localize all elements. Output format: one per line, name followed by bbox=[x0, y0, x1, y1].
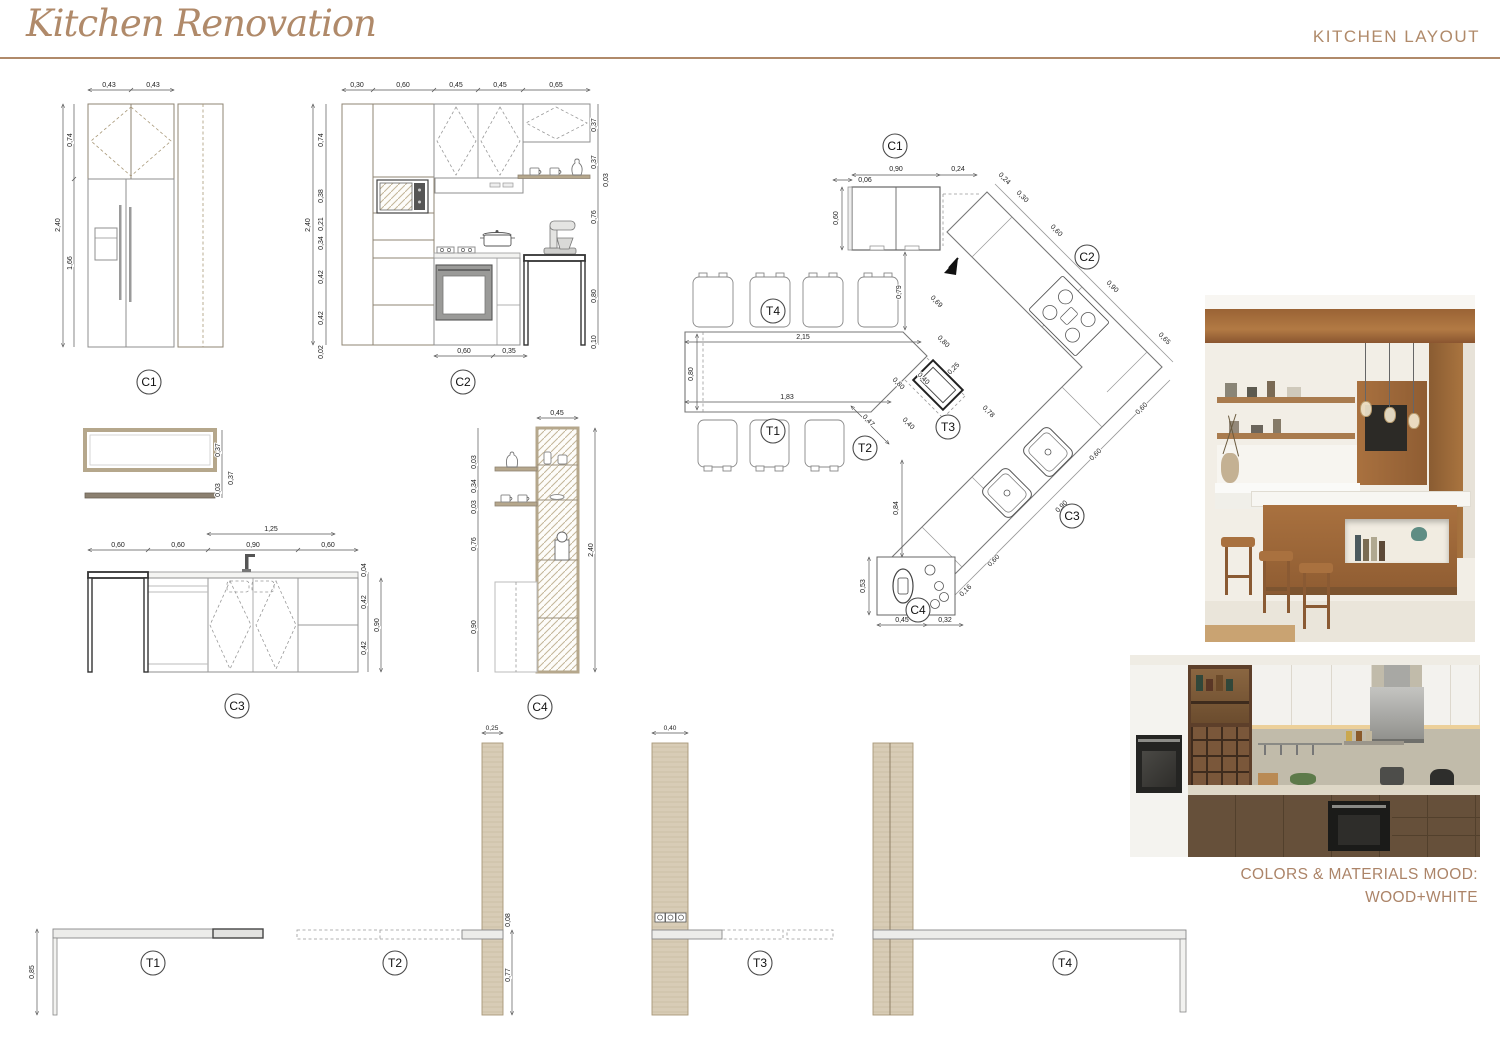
photo2-drawer-line bbox=[1392, 835, 1480, 836]
photo1-shelf-item bbox=[1287, 387, 1301, 397]
c2-microwave bbox=[377, 180, 428, 213]
photo1-stool-leg bbox=[1303, 573, 1306, 629]
svg-text:0,16: 0,16 bbox=[959, 584, 974, 599]
photo1-stool-leg bbox=[1263, 561, 1266, 613]
svg-text:0,90: 0,90 bbox=[471, 620, 478, 634]
t3-tag: T3 bbox=[748, 951, 772, 975]
svg-text:2,40: 2,40 bbox=[305, 218, 312, 232]
photo1-book bbox=[1379, 541, 1385, 561]
c1-fridge bbox=[88, 179, 174, 347]
svg-text:0,53: 0,53 bbox=[860, 579, 867, 593]
t1-dimensions: 0,85 bbox=[29, 929, 37, 1015]
svg-text:0,42: 0,42 bbox=[318, 270, 325, 284]
elevation-t2: 0,25 0,08 0,77 T2 bbox=[290, 720, 520, 1020]
svg-text:0,60: 0,60 bbox=[987, 554, 1002, 569]
t1-tag: T1 bbox=[141, 951, 165, 975]
photo1-book bbox=[1371, 537, 1377, 561]
svg-text:0,90: 0,90 bbox=[889, 166, 903, 173]
svg-text:0,08: 0,08 bbox=[505, 913, 512, 927]
photo2-bottle bbox=[1196, 675, 1203, 691]
svg-text:0,90: 0,90 bbox=[1105, 280, 1120, 295]
svg-text:0,90: 0,90 bbox=[374, 618, 381, 632]
svg-text:1,25: 1,25 bbox=[264, 526, 278, 533]
photo2-ceiling bbox=[1130, 655, 1480, 665]
photo1-wood-beam bbox=[1205, 309, 1475, 343]
plan-entry-arrow bbox=[944, 258, 958, 275]
svg-text:0,85: 0,85 bbox=[29, 965, 36, 979]
svg-text:0,25: 0,25 bbox=[486, 725, 499, 732]
svg-text:C1: C1 bbox=[887, 139, 903, 153]
svg-text:0,90: 0,90 bbox=[246, 542, 260, 549]
photo1-shelf-item bbox=[1251, 425, 1263, 433]
kitchen-photo-island bbox=[1205, 295, 1475, 642]
c4-lower-cabinet bbox=[495, 582, 537, 672]
photo1-pendant-lamp bbox=[1408, 413, 1420, 429]
svg-text:0,24: 0,24 bbox=[997, 172, 1012, 187]
svg-text:0,04: 0,04 bbox=[361, 563, 368, 577]
c2-tag: C2 bbox=[451, 370, 475, 394]
logo-script: Kitchen Renovation bbox=[26, 2, 376, 45]
c2-shelf-with-items bbox=[518, 159, 590, 179]
svg-text:2,40: 2,40 bbox=[588, 543, 595, 557]
svg-text:0,32: 0,32 bbox=[938, 617, 952, 624]
photo1-pendant-wire bbox=[1365, 343, 1366, 401]
c2-stand-mixer bbox=[544, 221, 576, 254]
photo1-stool-seat bbox=[1299, 563, 1333, 573]
svg-text:0,45: 0,45 bbox=[493, 82, 507, 89]
c3-counter-faucet bbox=[143, 554, 358, 578]
svg-text:0,37: 0,37 bbox=[591, 118, 598, 132]
photo1-right-wall bbox=[1463, 343, 1475, 558]
svg-text:0,03: 0,03 bbox=[471, 500, 478, 514]
photo1-island-plinth bbox=[1263, 587, 1457, 595]
svg-text:0,84: 0,84 bbox=[893, 501, 900, 515]
t3-dimensions: 0,40 bbox=[652, 725, 688, 733]
svg-text:0,60: 0,60 bbox=[321, 542, 335, 549]
c1-tag: C1 bbox=[137, 370, 161, 394]
photo1-pendant-wire bbox=[1413, 343, 1414, 413]
photo1-shelf bbox=[1217, 397, 1355, 403]
svg-text:2,15: 2,15 bbox=[796, 334, 810, 341]
svg-text:T2: T2 bbox=[388, 956, 402, 970]
svg-text:0,34: 0,34 bbox=[471, 479, 478, 493]
svg-text:0,37: 0,37 bbox=[228, 471, 235, 485]
svg-text:0,34: 0,34 bbox=[318, 236, 325, 250]
photo2-bottle bbox=[1216, 675, 1223, 691]
t2-tag: T2 bbox=[383, 951, 407, 975]
c3-wall-detail: 0,37 0,37 0,03 bbox=[85, 430, 235, 498]
c3-tag: C3 bbox=[225, 694, 249, 718]
photo2-drawer-line bbox=[1392, 817, 1480, 818]
c3-base-cabinets bbox=[148, 578, 358, 672]
photo1-stool-bar bbox=[1225, 575, 1252, 578]
c4-glass-cabinet bbox=[537, 428, 578, 672]
photo1-pendant-lamp bbox=[1384, 407, 1396, 423]
photo2-greens bbox=[1290, 773, 1316, 785]
photo2-spice-shelf bbox=[1344, 741, 1404, 745]
svg-text:C2: C2 bbox=[455, 375, 471, 389]
svg-text:0,60: 0,60 bbox=[1049, 224, 1064, 239]
photo2-black-oven-window bbox=[1338, 815, 1380, 845]
t4-tag: T4 bbox=[1053, 951, 1077, 975]
photo1-shelf-item bbox=[1225, 383, 1237, 397]
svg-text:0,60: 0,60 bbox=[457, 348, 471, 355]
photo2-utensil bbox=[1264, 745, 1266, 755]
svg-text:0,65: 0,65 bbox=[1157, 332, 1172, 347]
svg-text:0,45: 0,45 bbox=[550, 410, 564, 417]
svg-text:0,76: 0,76 bbox=[591, 210, 598, 224]
svg-text:T4: T4 bbox=[1058, 956, 1072, 970]
svg-text:0,21: 0,21 bbox=[318, 217, 325, 231]
svg-text:T2: T2 bbox=[858, 441, 872, 455]
svg-text:C3: C3 bbox=[229, 699, 245, 713]
svg-text:0,79: 0,79 bbox=[896, 285, 903, 299]
svg-text:C4: C4 bbox=[532, 700, 548, 714]
photo2-bottle bbox=[1226, 679, 1233, 691]
svg-text:0,74: 0,74 bbox=[67, 133, 74, 147]
t3-column-table bbox=[652, 743, 833, 1015]
svg-text:0,30: 0,30 bbox=[350, 82, 364, 89]
svg-text:0,40: 0,40 bbox=[901, 417, 916, 432]
photo2-wine-rack bbox=[1191, 727, 1249, 789]
photo1-shelf bbox=[1217, 433, 1355, 439]
svg-text:0,43: 0,43 bbox=[102, 82, 116, 89]
svg-text:0,25: 0,25 bbox=[947, 362, 962, 377]
plan-view: 0,90 0,24 0,06 0,60 0,79 0,24 0,30 0,60 … bbox=[665, 130, 1185, 640]
svg-text:0,80: 0,80 bbox=[688, 367, 695, 381]
svg-text:C2: C2 bbox=[1079, 250, 1095, 264]
svg-text:T3: T3 bbox=[753, 956, 767, 970]
photo1-shelf-item bbox=[1267, 381, 1275, 397]
svg-text:0,10: 0,10 bbox=[591, 335, 598, 349]
photo2-utensil bbox=[1296, 745, 1298, 755]
c4-tag: C4 bbox=[528, 695, 552, 719]
photo1-stool-seat bbox=[1259, 551, 1293, 561]
photo2-black-oven-handle bbox=[1332, 805, 1386, 808]
mood-line2: WOOD+WHITE bbox=[1000, 886, 1478, 909]
svg-text:0,69: 0,69 bbox=[929, 295, 944, 310]
photo2-bottle bbox=[1206, 679, 1213, 691]
photo2-oven-handle bbox=[1138, 739, 1180, 742]
svg-text:0,65: 0,65 bbox=[549, 82, 563, 89]
svg-text:0,03: 0,03 bbox=[603, 173, 610, 187]
kitchen-renovation-board: Kitchen Renovation KITCHEN LAYOUT 0,43 0… bbox=[0, 0, 1500, 1061]
photo2-utensil-rail bbox=[1258, 743, 1342, 745]
svg-text:0,76: 0,76 bbox=[471, 537, 478, 551]
svg-text:T1: T1 bbox=[146, 956, 160, 970]
photo2-pot bbox=[1380, 767, 1404, 785]
c2-upper-cabinets bbox=[434, 104, 590, 193]
svg-text:0,74: 0,74 bbox=[318, 133, 325, 147]
page-title: KITCHEN LAYOUT bbox=[1313, 27, 1480, 47]
svg-text:0,03: 0,03 bbox=[471, 455, 478, 469]
photo1-stool-leg bbox=[1327, 573, 1330, 629]
photo1-pendant-wire bbox=[1389, 343, 1390, 407]
photo2-utensil bbox=[1280, 745, 1282, 755]
elevation-c3: 0,37 0,37 0,03 bbox=[80, 420, 400, 720]
photo1-shelf-item bbox=[1247, 387, 1257, 397]
svg-text:0,02: 0,02 bbox=[318, 345, 325, 359]
photo1-stool-bar bbox=[1303, 605, 1330, 608]
svg-text:1,83: 1,83 bbox=[780, 394, 794, 401]
svg-text:0,78: 0,78 bbox=[981, 405, 996, 420]
svg-text:0,45: 0,45 bbox=[449, 82, 463, 89]
svg-text:0,37: 0,37 bbox=[591, 155, 598, 169]
c2-cooktop-oven bbox=[434, 230, 520, 345]
svg-text:0,60: 0,60 bbox=[833, 211, 840, 225]
photo2-under-cabinet-light bbox=[1252, 725, 1372, 729]
svg-text:0,60: 0,60 bbox=[1135, 402, 1150, 417]
svg-text:0,60: 0,60 bbox=[111, 542, 125, 549]
svg-text:0,30: 0,30 bbox=[1015, 190, 1030, 205]
svg-text:0,43: 0,43 bbox=[146, 82, 160, 89]
svg-text:C1: C1 bbox=[141, 375, 157, 389]
photo1-teal-pot bbox=[1411, 527, 1427, 541]
c4-side-shelves bbox=[495, 452, 537, 506]
c2-tall-cabinets bbox=[342, 104, 434, 345]
c3-side-table bbox=[88, 572, 148, 672]
svg-text:0,60: 0,60 bbox=[396, 82, 410, 89]
photo1-stool-bar bbox=[1263, 591, 1290, 594]
svg-text:0,42: 0,42 bbox=[361, 641, 368, 655]
photo1-pendant-lamp bbox=[1360, 401, 1372, 417]
mood-line1: COLORS & MATERIALS MOOD: bbox=[1000, 863, 1478, 886]
svg-text:0,80: 0,80 bbox=[591, 289, 598, 303]
photo1-vase bbox=[1221, 453, 1239, 483]
photo2-under-cabinet-light bbox=[1422, 725, 1480, 729]
elevation-c4: 0,45 0,03 0,34 0,03 0,76 0,90 2,40 C4 bbox=[460, 410, 645, 725]
svg-text:1,66: 1,66 bbox=[67, 256, 74, 270]
svg-text:0,35: 0,35 bbox=[502, 348, 516, 355]
c2-side-table bbox=[524, 255, 585, 345]
svg-text:0,03: 0,03 bbox=[215, 483, 222, 497]
elevation-c1: 0,43 0,43 2,40 0,74 1,66 C1 bbox=[55, 80, 305, 400]
svg-text:C3: C3 bbox=[1064, 509, 1080, 523]
svg-text:0,47: 0,47 bbox=[861, 414, 876, 429]
photo2-range-hood bbox=[1370, 687, 1424, 743]
photo2-upper-cabinets bbox=[1422, 665, 1480, 725]
svg-text:0,24: 0,24 bbox=[951, 166, 965, 173]
svg-text:2,40: 2,40 bbox=[55, 218, 62, 232]
photo2-upper-cabinets bbox=[1252, 665, 1372, 726]
mood-caption: COLORS & MATERIALS MOOD: WOOD+WHITE bbox=[1000, 863, 1478, 909]
photo2-hood-flue bbox=[1384, 665, 1410, 689]
svg-text:0,37: 0,37 bbox=[215, 443, 222, 457]
photo1-stool-leg bbox=[1225, 547, 1228, 595]
svg-text:T4: T4 bbox=[766, 304, 780, 318]
photo1-stool-seat bbox=[1221, 537, 1255, 547]
svg-text:0,42: 0,42 bbox=[361, 595, 368, 609]
photo1-wood-floor bbox=[1205, 625, 1295, 642]
photo1-shelf-item bbox=[1273, 419, 1281, 433]
plan-fridge bbox=[848, 187, 940, 250]
svg-text:0,40: 0,40 bbox=[664, 725, 677, 732]
photo1-stool-leg bbox=[1287, 561, 1290, 613]
svg-text:0,80: 0,80 bbox=[936, 335, 951, 350]
svg-text:0,60: 0,60 bbox=[171, 542, 185, 549]
photo1-book bbox=[1363, 539, 1369, 561]
photo2-spice-jar bbox=[1366, 731, 1372, 741]
kitchen-photo-linear bbox=[1130, 655, 1480, 857]
photo2-utensil bbox=[1312, 745, 1314, 755]
svg-text:T3: T3 bbox=[941, 420, 955, 434]
svg-text:C4: C4 bbox=[910, 603, 926, 617]
photo1-stool-leg bbox=[1249, 547, 1252, 595]
svg-text:0,77: 0,77 bbox=[505, 968, 512, 982]
photo2-spice-jar bbox=[1346, 731, 1352, 741]
photo2-oven-window bbox=[1142, 751, 1176, 787]
elevation-t1: 0,85 T1 bbox=[25, 900, 325, 1040]
svg-text:0,45: 0,45 bbox=[895, 617, 909, 624]
svg-text:0,42: 0,42 bbox=[318, 311, 325, 325]
photo1-book bbox=[1355, 535, 1361, 561]
svg-text:0,60: 0,60 bbox=[1089, 448, 1104, 463]
photo2-hutch-shelf bbox=[1191, 701, 1249, 704]
svg-text:0,38: 0,38 bbox=[318, 189, 325, 203]
header-rule bbox=[0, 57, 1500, 59]
photo2-spice-jar bbox=[1356, 731, 1362, 741]
photo2-board bbox=[1258, 773, 1278, 785]
elevation-t3: 0,40 T3 bbox=[620, 720, 900, 1020]
svg-text:0,06: 0,06 bbox=[858, 177, 872, 184]
svg-text:T1: T1 bbox=[766, 424, 780, 438]
elevation-c2: 0,30 0,60 0,45 0,45 0,65 2,40 0,74 0,38 … bbox=[300, 80, 630, 410]
